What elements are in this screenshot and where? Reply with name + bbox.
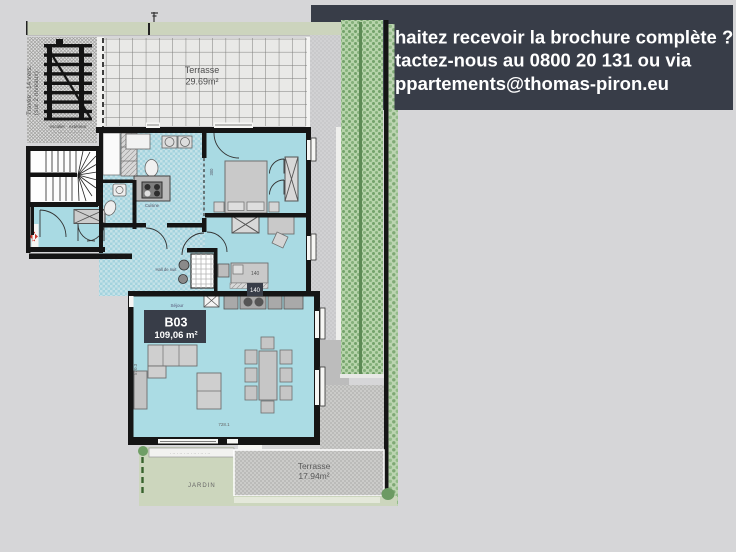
svg-text:haitez recevoir la brochure co: haitez recevoir la brochure complète ? (395, 27, 733, 48)
svg-text:17.94m²: 17.94m² (298, 471, 329, 481)
svg-text:·· ··· ·· ··· ·· ···: ·· ··· ·· ··· ·· ··· (54, 130, 83, 135)
svg-text:Hall de nuit: Hall de nuit (156, 267, 178, 272)
svg-text:728.1: 728.1 (218, 422, 230, 427)
svg-text:JARDIN: JARDIN (188, 483, 216, 489)
svg-text:escalier · extérieur: escalier · extérieur (49, 124, 87, 129)
svg-text:29.69m²: 29.69m² (185, 77, 218, 87)
svg-text:140: 140 (250, 288, 261, 294)
svg-text:B03: B03 (165, 316, 188, 330)
svg-text:(sur 2 niveaux): (sur 2 niveaux) (34, 71, 40, 115)
svg-text:tactez-nous au 0800 20 131 ou: tactez-nous au 0800 20 131 ou via (395, 50, 692, 71)
svg-text:· · · · · · · ·: · · · · · · · · (58, 136, 79, 141)
svg-text:Terrasse: Terrasse (298, 461, 331, 471)
svg-text:Terrasse: Terrasse (185, 65, 220, 75)
svg-text:· ·· · ·· · ·· · ·· · ·· · ··: · ·· · ·· · ·· · ·· · ·· · ·· (170, 451, 211, 456)
svg-text:Travée : 14 vers.: Travée : 14 vers. (27, 65, 33, 115)
svg-text:ppartements@thomas-piron.eu: ppartements@thomas-piron.eu (395, 73, 669, 94)
svg-text:Séjour: Séjour (170, 303, 184, 308)
svg-text:109,06 m²: 109,06 m² (154, 330, 197, 341)
svg-text:300: 300 (209, 168, 214, 176)
svg-text:Cuisine: Cuisine (145, 203, 160, 208)
svg-text:570.3: 570.3 (133, 363, 138, 375)
svg-text:140: 140 (251, 271, 260, 277)
